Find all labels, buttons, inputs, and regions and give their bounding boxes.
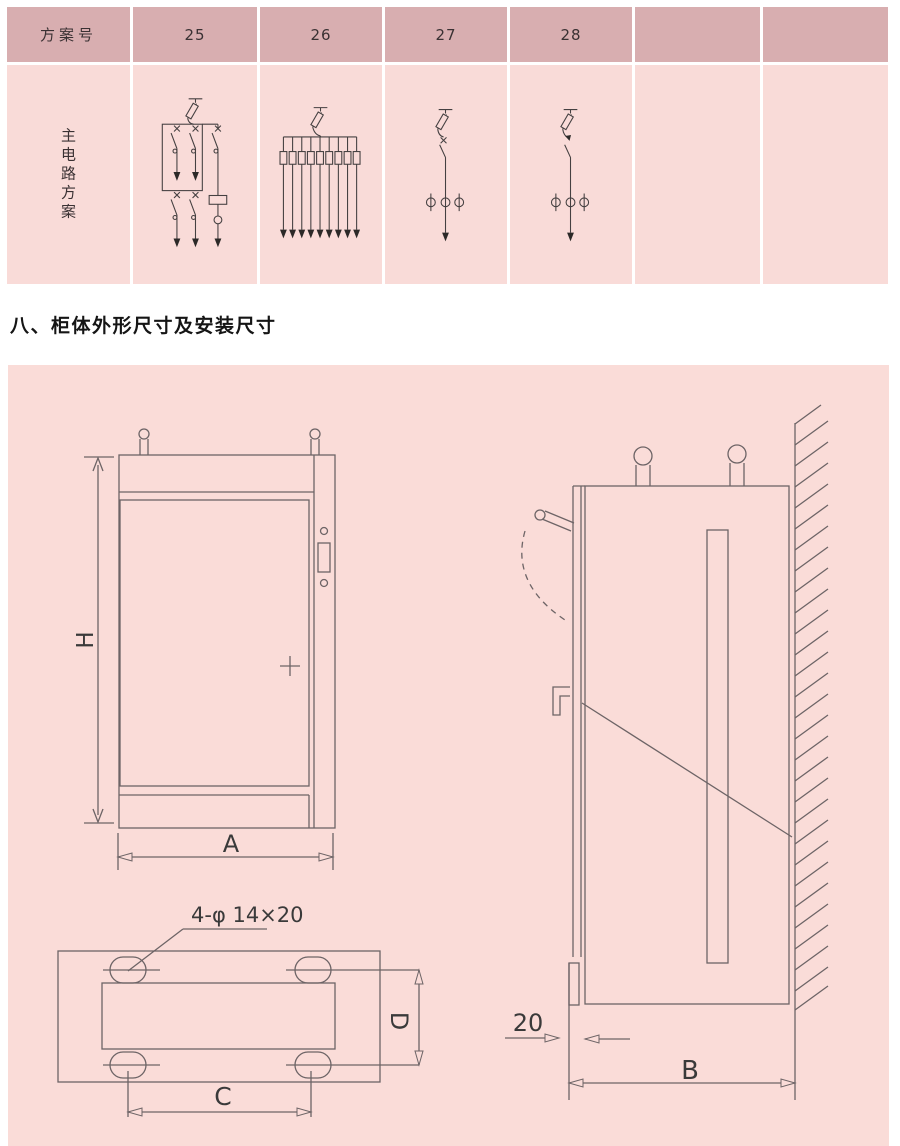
eyebolt-icon	[728, 445, 746, 463]
front-view-drawing: H A	[73, 429, 335, 870]
scheme-col-28-label: 28	[560, 26, 581, 44]
empty-scheme-cell-2	[763, 65, 888, 284]
scheme-28-diagram-cell	[510, 65, 635, 284]
dim-label-height: H	[73, 631, 99, 648]
dimension-drawing-panel: H A 4-φ 14×20	[8, 365, 889, 1146]
catalog-page: 方案号 25 26 27 28 主电路方案	[0, 0, 900, 1146]
eyebolt-icon	[634, 447, 652, 465]
scheme-col-26-cell: 26	[260, 7, 385, 65]
cabinet-dimension-drawing: H A 4-φ 14×20	[8, 365, 889, 1146]
scheme-col-empty-1-cell	[635, 7, 763, 65]
center-cross-mark	[280, 656, 300, 676]
circuit-diagram-27	[385, 65, 507, 284]
scheme-number-header-cell: 方案号	[7, 7, 133, 65]
scheme-col-27-label: 27	[435, 26, 456, 44]
scheme-26-diagram-cell	[260, 65, 385, 284]
scheme-27-diagram-cell	[385, 65, 510, 284]
scheme-col-25-cell: 25	[133, 7, 260, 65]
scheme-col-27-cell: 27	[385, 7, 510, 65]
door-handle-icon	[318, 543, 330, 572]
wall-hatching	[795, 405, 828, 1010]
base-plan-drawing: 4-φ 14×20 D C	[58, 903, 423, 1117]
scheme-25-diagram-cell	[133, 65, 260, 284]
lock-hole-icon	[321, 528, 328, 535]
dim-label-mounting-holes: 4-φ 14×20	[191, 903, 304, 927]
main-circuit-row-label-cell: 主电路方案	[7, 65, 133, 284]
hinge-bracket	[553, 687, 570, 715]
scheme-table-body-row: 主电路方案	[7, 65, 888, 284]
scheme-col-25-label: 25	[184, 26, 205, 44]
scheme-number-header: 方案号	[40, 24, 97, 45]
dim-label-foot-width: C	[214, 1082, 231, 1111]
circuit-diagram-28	[510, 65, 632, 284]
circuit-diagram-25	[133, 65, 257, 284]
circuit-diagram-26	[260, 65, 382, 284]
main-circuit-row-label: 主电路方案	[58, 127, 79, 222]
scheme-table-header-row: 方案号 25 26 27 28	[7, 7, 888, 65]
scheme-col-26-label: 26	[310, 26, 331, 44]
eyebolt-icon	[139, 429, 149, 439]
side-view-drawing: 20 B	[505, 405, 828, 1100]
dim-label-foot-depth: D	[385, 1012, 413, 1030]
scheme-col-empty-2-cell	[763, 7, 888, 65]
scheme-table: 方案号 25 26 27 28 主电路方案	[7, 7, 888, 284]
scheme-col-28-cell: 28	[510, 7, 635, 65]
section-heading: 八、柜体外形尺寸及安装尺寸	[10, 311, 277, 338]
door-handle-icon	[535, 510, 545, 520]
eyebolt-icon	[310, 429, 320, 439]
dim-label-width: A	[223, 830, 240, 858]
dim-label-wall-gap: 20	[513, 1009, 544, 1037]
vent-slot	[707, 530, 728, 963]
dim-label-depth: B	[681, 1056, 699, 1086]
door-swing-arc	[522, 531, 565, 620]
empty-scheme-cell-1	[635, 65, 763, 284]
lock-hole-icon	[321, 580, 328, 587]
